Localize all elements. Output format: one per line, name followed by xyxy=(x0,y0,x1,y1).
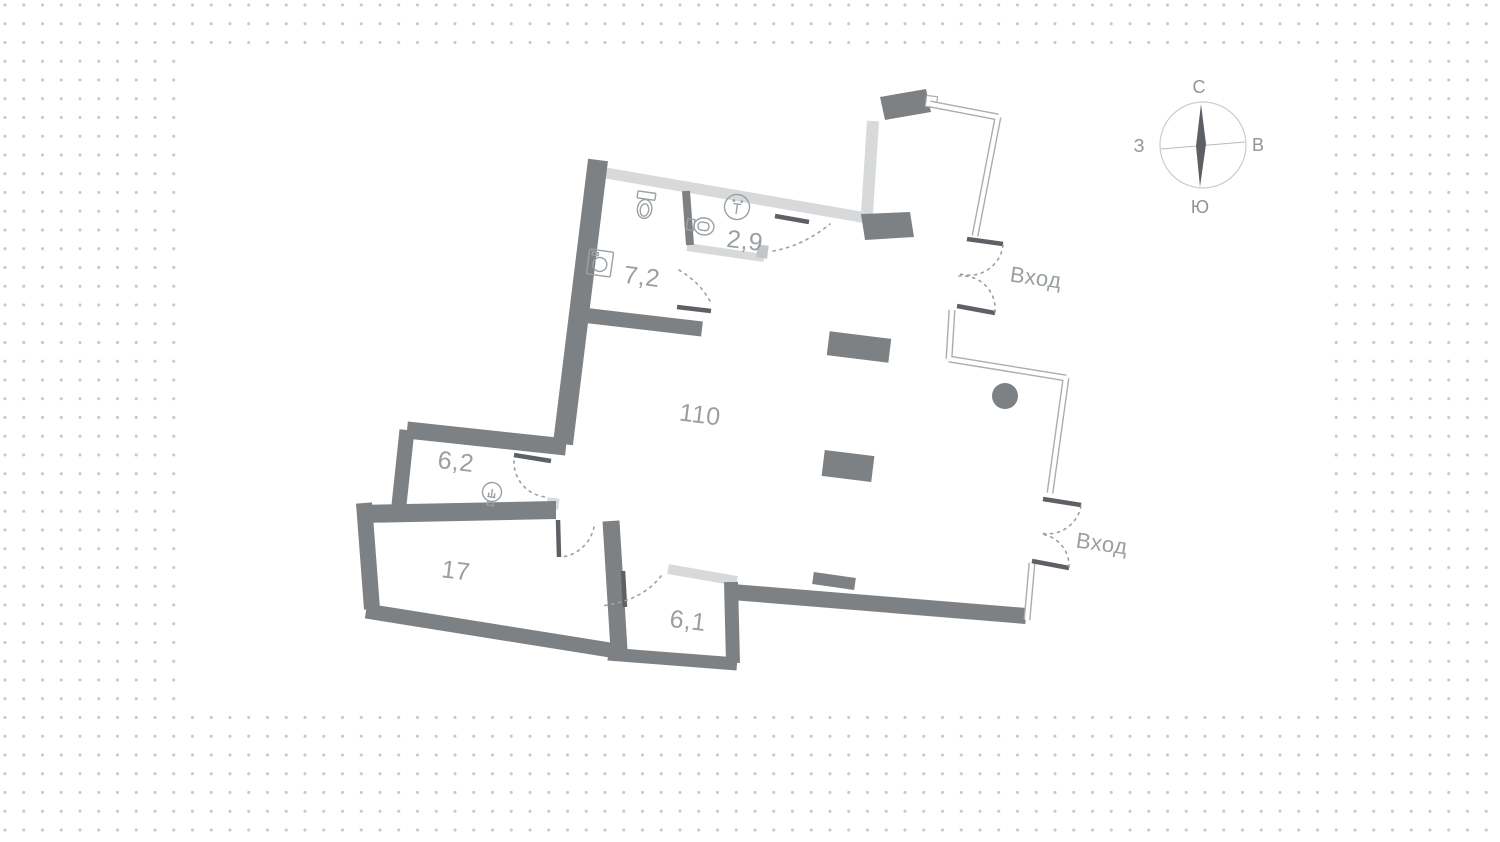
room-label-bathroom: 7,2 xyxy=(622,261,661,293)
pier-north-b xyxy=(861,212,914,240)
compass-east-label: В xyxy=(1252,135,1264,155)
floor-plan-drawing: 110 7,2 2,9 6,2 17 6,1 Вход Вход С Ю З В xyxy=(0,0,1500,842)
room-label-hallway: 6,1 xyxy=(668,605,707,637)
dotted-canvas: 110 7,2 2,9 6,2 17 6,1 Вход Вход С Ю З В xyxy=(0,0,1500,842)
room-label-wc: 2,9 xyxy=(725,225,764,257)
light-wall-vertical xyxy=(867,121,873,214)
door-leaf xyxy=(623,571,625,607)
wall-west-room17 xyxy=(364,503,372,609)
compass-west-label: З xyxy=(1134,136,1145,156)
room-label-room17: 17 xyxy=(440,555,472,586)
room-label-storage: 6,2 xyxy=(436,446,475,478)
door-leaf xyxy=(558,520,559,557)
compass-south-label: Ю xyxy=(1191,197,1209,217)
wall-room17-hallway xyxy=(611,521,619,650)
wall-west-storage xyxy=(399,430,407,505)
column-icon xyxy=(992,383,1018,409)
room-label-openspace: 110 xyxy=(678,399,722,432)
compass-north-label: С xyxy=(1193,77,1206,97)
plan-sheet xyxy=(182,52,1322,706)
wall-south-step xyxy=(813,578,855,584)
